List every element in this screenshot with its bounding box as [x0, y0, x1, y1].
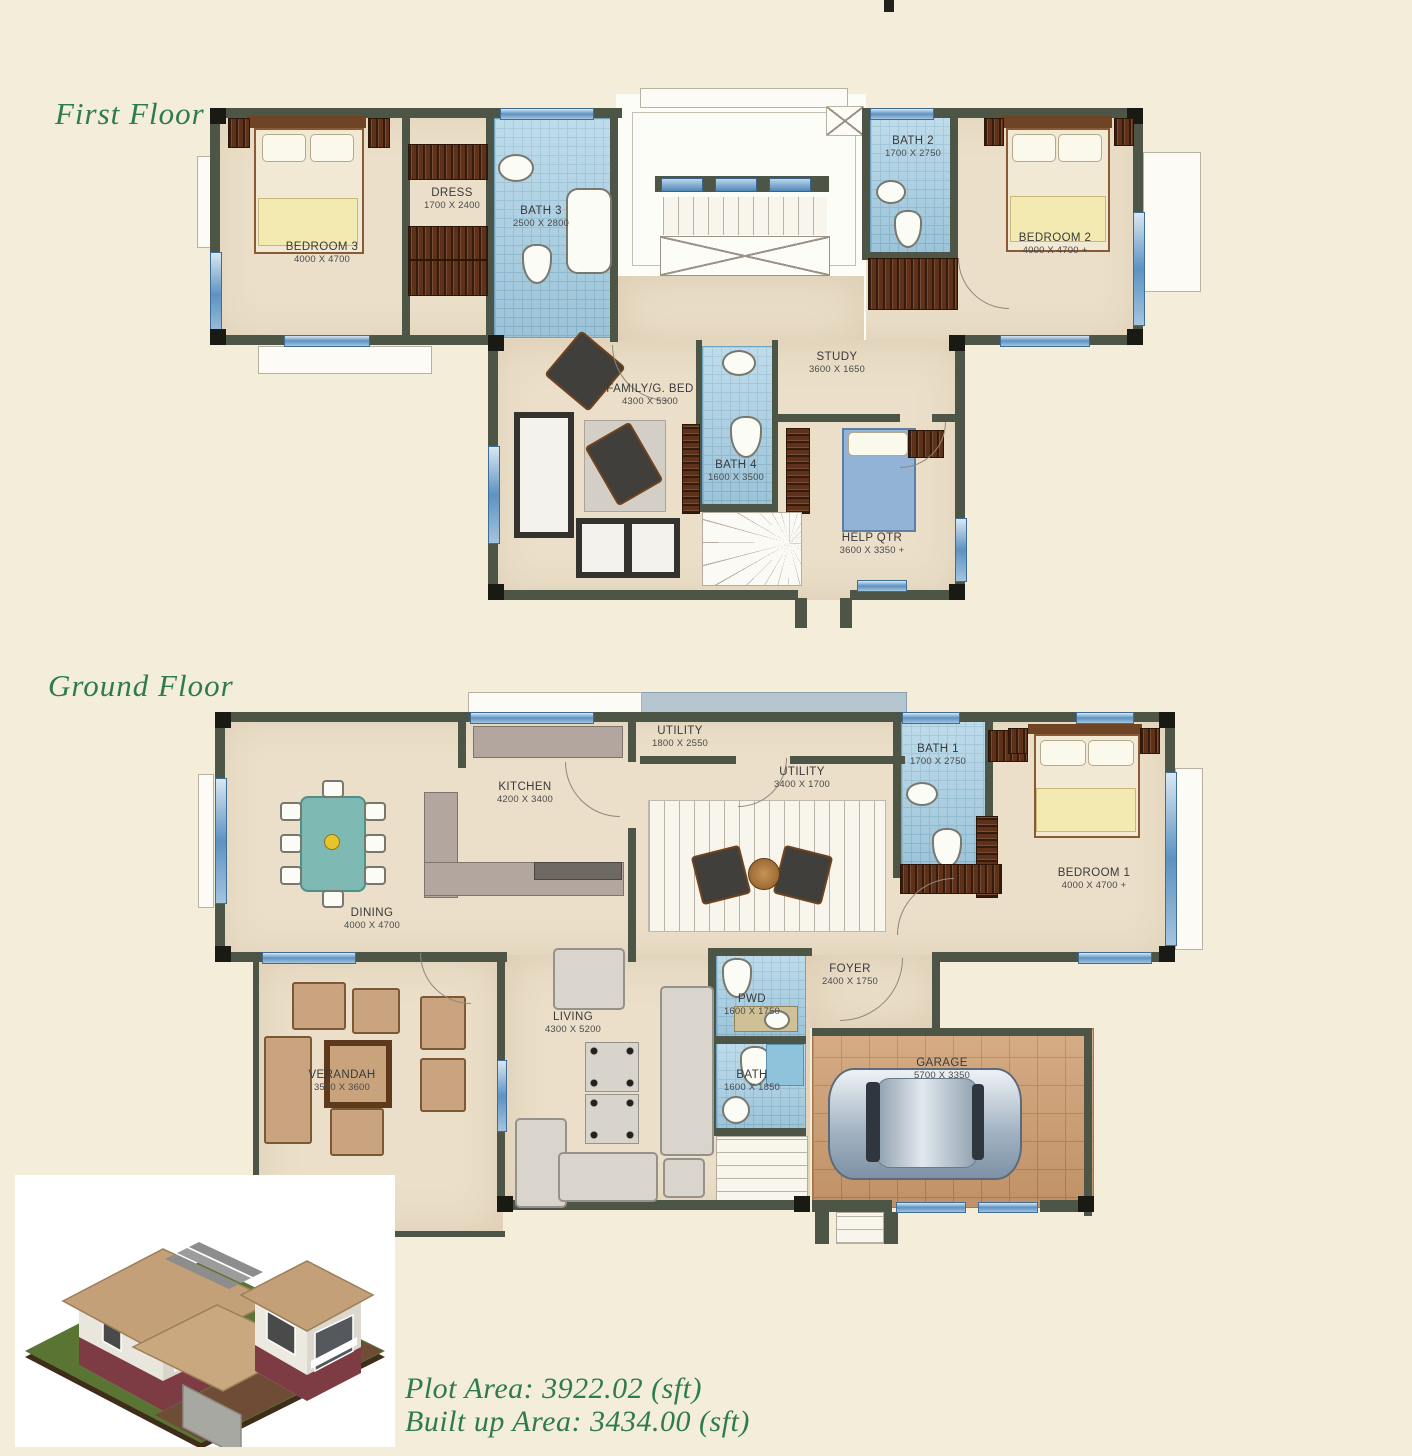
window: [1076, 712, 1134, 724]
armchair-icon: [420, 1058, 466, 1112]
chair-icon: [626, 518, 680, 578]
nightstand-icon: [228, 118, 250, 148]
wall: [772, 340, 778, 508]
room-label-garage: GARAGE 5700 X 3350: [914, 1056, 970, 1082]
wall-corner: [1159, 946, 1175, 962]
window: [210, 252, 222, 338]
wall: [708, 948, 812, 956]
window: [488, 446, 500, 544]
wall: [458, 712, 466, 768]
coffee-table-icon: [585, 1042, 639, 1092]
window-sill: [198, 774, 214, 908]
window-recess: [468, 692, 642, 714]
dining-chair-icon: [322, 780, 344, 798]
window: [1000, 335, 1090, 347]
porch-steps: [836, 1212, 884, 1244]
blanket-icon: [258, 198, 358, 246]
stairs-icon: [702, 512, 802, 586]
coffee-table-icon: [585, 1094, 639, 1144]
nightstand-icon: [368, 118, 390, 148]
pillow-icon: [1058, 134, 1102, 162]
sofa-icon: [660, 986, 714, 1156]
railing-glass: [661, 178, 703, 192]
nightstand-icon: [984, 118, 1004, 146]
window-sill: [1175, 768, 1203, 950]
plot-area-text: Plot Area: 3922.02 (sft): [405, 1372, 702, 1406]
kitchen-counter-icon: [473, 726, 623, 758]
window: [955, 518, 967, 582]
armchair-icon: [330, 1108, 384, 1156]
wall-corner: [794, 1196, 810, 1212]
window: [215, 778, 227, 904]
sink-icon: [876, 180, 906, 204]
duct-shaft: [826, 106, 864, 136]
room-label-utility: UTILITY 3400 X 1700: [774, 765, 830, 791]
room-label-bath-1: BATH 1 1700 X 2750: [910, 742, 966, 768]
blanket-icon: [1036, 788, 1136, 832]
balcony-left: [258, 346, 432, 374]
corridor-floor: [618, 276, 864, 342]
kitchen-hob-icon: [534, 862, 622, 880]
wall: [1084, 1028, 1092, 1216]
sink-icon: [498, 154, 534, 182]
wall-corner: [949, 335, 965, 351]
ottoman-icon: [663, 1158, 705, 1198]
wall-corner: [210, 329, 226, 345]
utility-ledge: [640, 692, 907, 714]
wall: [628, 712, 636, 762]
wall-corner: [949, 584, 965, 600]
wall: [716, 1128, 806, 1136]
window: [284, 335, 370, 347]
chaise-icon: [514, 412, 574, 538]
wall: [778, 414, 900, 422]
dining-chair-icon: [322, 890, 344, 908]
wall: [840, 598, 852, 628]
sink-icon: [722, 1096, 750, 1124]
car-cabin: [876, 1078, 978, 1168]
room-label-bath-4: BATH 4 1600 X 3500: [708, 458, 764, 484]
wall: [640, 756, 736, 764]
room-label-bedroom-2: BEDROOM 2 4000 X 4700 +: [1019, 231, 1092, 257]
wardrobe-icon: [408, 144, 488, 180]
room-label-study: STUDY 3600 X 1650: [809, 350, 865, 376]
window: [857, 580, 907, 592]
room-label-pwd: PWD 1600 X 1750: [724, 992, 780, 1018]
room-label-dining: DINING 4000 X 4700: [344, 906, 400, 932]
wall: [862, 108, 870, 260]
wardrobe-icon: [408, 260, 488, 296]
bed-headboard-icon: [248, 116, 366, 128]
nightstand-icon: [1114, 118, 1134, 146]
registration-mark: [884, 0, 894, 12]
wall-corner: [1127, 329, 1143, 345]
side-table-icon: [748, 858, 780, 890]
room-label-bath-2: BATH 2 1700 X 2750: [885, 134, 941, 160]
wall-corner: [488, 335, 504, 351]
wall: [716, 1036, 806, 1044]
wall-corner: [497, 1196, 513, 1212]
wall-corner: [1078, 1196, 1094, 1212]
wall: [932, 952, 940, 1032]
pillow-icon: [848, 432, 908, 456]
bed-headboard-icon: [1028, 724, 1142, 734]
room-label-bedroom-1: BEDROOM 1 4000 X 4700 +: [1058, 866, 1131, 892]
armchair-icon: [292, 982, 346, 1030]
room-label-help-qtr: HELP QTR 3600 X 3350 +: [840, 531, 905, 557]
railing-glass: [715, 178, 757, 192]
house-3d-svg: [15, 1175, 395, 1447]
built-up-area-text: Built up Area: 3434.00 (sft): [405, 1405, 750, 1439]
wall-corner: [210, 108, 226, 124]
room-label-dress: DRESS 1700 X 2400: [424, 186, 480, 212]
bed-headboard-icon: [1000, 116, 1112, 128]
wall: [790, 756, 905, 764]
wardrobe-icon: [408, 226, 488, 260]
wall: [795, 598, 807, 628]
garage-door-window: [896, 1202, 966, 1213]
room-label-kitchen: KITCHEN 4200 X 3400: [497, 780, 553, 806]
window: [1133, 212, 1145, 326]
dining-chair-icon: [280, 866, 302, 885]
wall: [950, 108, 958, 260]
garage-door-window: [978, 1202, 1038, 1213]
wall: [884, 1212, 898, 1244]
wall: [488, 590, 798, 600]
wall: [815, 1212, 829, 1244]
roof-projection: [640, 88, 848, 108]
first-floor-title: First Floor: [55, 96, 205, 132]
dining-chair-icon: [280, 834, 302, 853]
sink-icon: [906, 782, 938, 806]
window: [500, 108, 594, 120]
room-label-bedroom-3: BEDROOM 3 4000 X 4700: [286, 240, 359, 266]
table-centerpiece-icon: [324, 834, 340, 850]
room-label-bath-3: BATH 3 2500 X 2800: [513, 204, 569, 230]
nightstand-icon: [1008, 728, 1028, 754]
chair-icon: [576, 518, 630, 578]
wall-corner: [215, 946, 231, 962]
wall: [932, 414, 965, 422]
armchair-icon: [420, 996, 466, 1050]
room-label-verandah: VERANDAH 3550 X 3600: [308, 1068, 375, 1094]
car-windshield: [866, 1082, 880, 1162]
pillow-icon: [310, 134, 354, 162]
wardrobe-icon: [786, 428, 810, 514]
window: [497, 1060, 507, 1132]
pillow-icon: [262, 134, 306, 162]
house-3d-render: [15, 1175, 395, 1447]
nightstand-icon: [1140, 728, 1160, 754]
terrace-treads: [663, 197, 827, 235]
room-label-utility-small: UTILITY 1800 X 2550: [652, 724, 708, 750]
bathtub-icon: [566, 188, 612, 274]
ground-floor-title: Ground Floor: [48, 668, 234, 704]
window: [870, 108, 934, 120]
wall: [215, 712, 1175, 722]
window: [262, 952, 356, 964]
wall: [812, 1028, 1092, 1036]
window: [1078, 952, 1152, 964]
wall: [812, 1200, 892, 1212]
void-hatch: [660, 236, 830, 276]
dining-chair-icon: [364, 834, 386, 853]
window: [470, 712, 594, 724]
bench-icon: [868, 258, 958, 310]
wall: [628, 828, 636, 962]
pillow-icon: [1012, 134, 1056, 162]
armchair-icon: [352, 988, 400, 1034]
wardrobe-icon: [682, 424, 700, 514]
dining-chair-icon: [364, 802, 386, 821]
sink-icon: [722, 350, 756, 376]
pillow-icon: [1040, 740, 1086, 766]
window: [902, 712, 960, 724]
room-label-family: FAMILY/G. BED 4300 X 5300: [606, 382, 693, 408]
wall: [893, 712, 901, 878]
pillow-icon: [1088, 740, 1134, 766]
window: [1165, 772, 1177, 946]
wall: [696, 504, 778, 512]
railing-glass: [769, 178, 811, 192]
room-label-bath: BATH 1600 X 1850: [724, 1068, 780, 1094]
armchair-icon: [553, 948, 625, 1010]
room-label-living: LIVING 4300 X 5200: [545, 1010, 601, 1036]
wall-corner: [488, 584, 504, 600]
sofa-icon: [558, 1152, 658, 1202]
car-rear-window: [972, 1084, 984, 1160]
dining-chair-icon: [364, 866, 386, 885]
balcony-right: [1143, 152, 1201, 292]
room-label-foyer: FOYER 2400 X 1750: [822, 962, 878, 988]
sofa-icon: [264, 1036, 312, 1144]
floor-plan-sheet: { "sheet": { "first_floor_title": "First…: [0, 0, 1412, 1456]
dining-chair-icon: [280, 802, 302, 821]
wall-corner: [1159, 712, 1175, 728]
wall-corner: [215, 712, 231, 728]
